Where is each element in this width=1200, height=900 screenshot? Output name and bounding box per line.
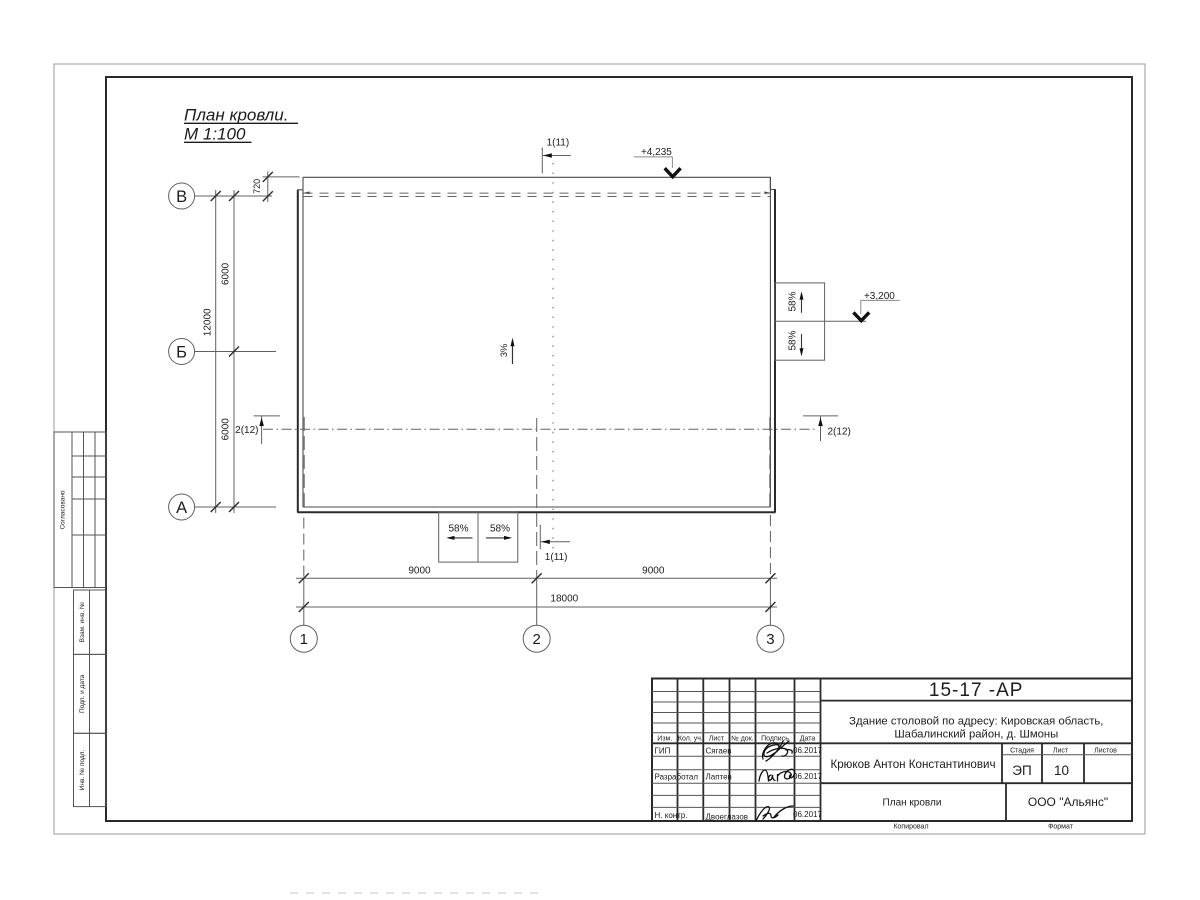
svg-text:ООО "Альянс": ООО "Альянс"	[1028, 795, 1108, 809]
svg-text:58%: 58%	[490, 524, 510, 535]
svg-text:Согласовано: Согласовано	[60, 490, 67, 529]
svg-text:18000: 18000	[550, 594, 578, 605]
svg-text:58%: 58%	[787, 291, 798, 311]
svg-text:15-17 -АР: 15-17 -АР	[929, 680, 1024, 701]
svg-text:Стадия: Стадия	[1010, 747, 1034, 754]
svg-text:2(12): 2(12)	[828, 427, 851, 438]
svg-text:Разработал: Разработал	[655, 772, 699, 781]
svg-text:1(11): 1(11)	[545, 552, 568, 563]
svg-text:2(12): 2(12)	[235, 425, 258, 436]
svg-text:План кровли.: План кровли.	[184, 106, 288, 125]
svg-text:Формат: Формат	[1048, 823, 1074, 830]
svg-text:1: 1	[300, 631, 308, 648]
svg-text:Сягаев: Сягаев	[706, 747, 732, 756]
svg-text:10: 10	[1054, 763, 1069, 778]
svg-text:Взам. инв. №: Взам. инв. №	[79, 602, 86, 642]
svg-text:3: 3	[766, 631, 774, 648]
svg-text:М 1:100: М 1:100	[184, 125, 246, 144]
svg-text:720: 720	[252, 179, 262, 194]
svg-text:Дата: Дата	[800, 735, 816, 742]
svg-text:9000: 9000	[642, 566, 665, 577]
svg-text:Н. контр.: Н. контр.	[655, 811, 688, 820]
svg-text:Подпись: Подпись	[761, 735, 789, 742]
svg-text:Лист: Лист	[1053, 747, 1069, 754]
svg-text:Копировал: Копировал	[893, 823, 928, 830]
svg-text:12000: 12000	[202, 308, 213, 336]
svg-text:+4,235: +4,235	[641, 147, 672, 158]
svg-text:06.2017: 06.2017	[793, 810, 822, 819]
svg-text:Кол. уч.: Кол. уч.	[678, 735, 703, 742]
svg-text:06.2017: 06.2017	[793, 746, 822, 755]
svg-text:9000: 9000	[408, 566, 431, 577]
svg-text:№ док.: № док.	[731, 735, 753, 742]
svg-text:Лист: Лист	[709, 735, 725, 742]
svg-text:2: 2	[533, 631, 541, 648]
svg-text:58%: 58%	[787, 330, 798, 350]
svg-text:Крюков Антон Константинович: Крюков Антон Константинович	[830, 758, 995, 771]
svg-text:ЭП: ЭП	[1012, 763, 1031, 778]
svg-text:6000: 6000	[220, 418, 231, 441]
svg-text:Подп. и дата: Подп. и дата	[79, 674, 86, 713]
svg-text:ГИП: ГИП	[655, 747, 671, 756]
svg-text:Инв. № подл.: Инв. № подл.	[79, 750, 86, 791]
svg-text:В: В	[176, 188, 187, 206]
svg-text:06.2017: 06.2017	[793, 772, 822, 781]
svg-text:Лаптев: Лаптев	[706, 772, 732, 781]
svg-text:Б: Б	[176, 343, 187, 361]
svg-text:Изм.: Изм.	[657, 735, 672, 742]
svg-text:А: А	[176, 499, 187, 517]
svg-text:Двоеглазов: Двоеглазов	[706, 813, 749, 822]
svg-text:58%: 58%	[448, 524, 468, 535]
svg-text:Здание столовой по адресу: Кир: Здание столовой по адресу: Кировская обл…	[849, 716, 1103, 728]
svg-text:3%: 3%	[499, 344, 509, 357]
svg-text:План кровли: План кровли	[883, 798, 942, 809]
svg-text:Шабалинский район, д. Шмоны: Шабалинский район, д. Шмоны	[894, 728, 1058, 740]
svg-text:1(11): 1(11)	[547, 138, 570, 149]
svg-text:Листов: Листов	[1094, 747, 1117, 754]
svg-text:6000: 6000	[220, 262, 231, 285]
